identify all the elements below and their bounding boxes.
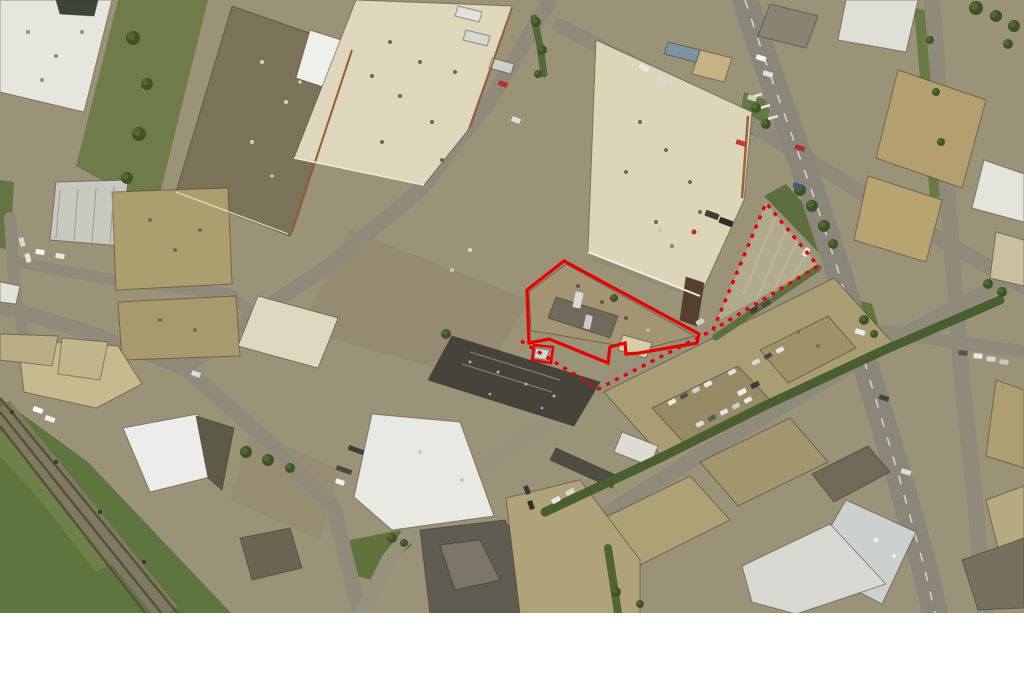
- roof-vent: [388, 40, 392, 44]
- aerial-photo-svg: [0, 0, 1024, 613]
- roof-vent: [624, 316, 628, 320]
- roof-vent: [148, 218, 152, 222]
- roof-vent: [380, 140, 384, 144]
- roof-vent: [468, 248, 472, 252]
- building-roof-vent-nw: [56, 0, 98, 16]
- car: [999, 359, 1008, 365]
- roof-vent: [688, 180, 692, 184]
- tree: [970, 2, 978, 10]
- tree: [122, 173, 129, 180]
- building-tan-east3: [990, 232, 1024, 286]
- tree: [538, 46, 544, 52]
- tree: [762, 120, 768, 126]
- tree: [263, 455, 270, 462]
- roof-vent: [576, 284, 580, 288]
- roof-vent: [98, 510, 102, 514]
- roof-vent: [418, 450, 422, 454]
- roof-vent: [142, 560, 146, 564]
- building-tan-nw-corner1: [0, 334, 58, 366]
- roof-vent: [670, 244, 674, 248]
- tree: [819, 221, 826, 228]
- car: [973, 353, 982, 359]
- roof-vent: [450, 268, 454, 272]
- tree: [933, 89, 937, 93]
- roof-vent: [453, 70, 457, 74]
- roof-vent: [54, 54, 58, 58]
- tree: [611, 295, 615, 299]
- roof-vent: [664, 148, 668, 152]
- roof-vent: [469, 361, 472, 364]
- roof-vent: [398, 94, 402, 98]
- tree: [1004, 40, 1010, 46]
- tree: [241, 447, 248, 454]
- roof-vent: [198, 228, 202, 232]
- roof-vent: [10, 410, 14, 414]
- tree: [752, 104, 758, 110]
- building-white-w-small: [0, 282, 20, 304]
- page-bottom-margin: [0, 613, 1024, 691]
- roof-vent: [173, 248, 177, 252]
- tree: [860, 316, 866, 322]
- roof-vent: [638, 120, 642, 124]
- roof-vent: [270, 174, 273, 177]
- tree: [401, 540, 405, 544]
- roof-vent: [874, 538, 879, 543]
- tree: [286, 464, 292, 470]
- tree: [829, 240, 835, 246]
- roof-vent: [298, 80, 301, 83]
- roof-vent: [460, 478, 464, 482]
- roof-vent: [497, 371, 500, 374]
- tree: [871, 331, 875, 335]
- roof-vent: [284, 100, 288, 104]
- page: [0, 0, 1024, 691]
- roof-vent: [892, 554, 896, 558]
- roof-vent: [489, 393, 492, 396]
- roof-vent: [646, 328, 649, 331]
- tree: [127, 32, 135, 40]
- roof-vent: [654, 220, 658, 224]
- tree: [927, 37, 931, 41]
- roof-vent: [430, 120, 434, 124]
- roof-vent: [250, 140, 254, 144]
- tree: [133, 128, 141, 136]
- tree: [984, 280, 990, 286]
- roof-vent: [541, 407, 544, 410]
- roof-vent: [40, 78, 44, 82]
- roof-vent: [26, 30, 30, 34]
- tree: [998, 288, 1004, 294]
- roof-vent: [658, 228, 662, 232]
- tree: [637, 601, 641, 605]
- building-tan-west-upper: [112, 188, 232, 290]
- tree: [1009, 21, 1016, 28]
- tree: [532, 18, 538, 24]
- tree: [938, 139, 942, 143]
- roof-vent: [80, 30, 84, 34]
- tree: [388, 534, 394, 540]
- roof-vent: [525, 383, 528, 386]
- roof-vent: [692, 230, 697, 235]
- roof-vent: [193, 328, 197, 332]
- roof-vent: [260, 60, 264, 64]
- roof-vent: [158, 318, 162, 322]
- roof-vent: [698, 210, 702, 214]
- building-tan-west-lower: [118, 296, 240, 360]
- roof-vent: [54, 460, 58, 464]
- roof-vent: [796, 330, 800, 334]
- roof-vent: [600, 300, 604, 304]
- tree: [442, 330, 448, 336]
- roof-vent: [816, 344, 820, 348]
- car: [958, 350, 967, 356]
- roof-vent: [553, 395, 556, 398]
- aerial-photo: [0, 0, 1024, 613]
- roof-vent: [370, 74, 374, 78]
- roof-vent: [440, 158, 444, 162]
- tree: [991, 11, 998, 18]
- tree: [612, 588, 618, 594]
- tree: [807, 201, 814, 208]
- tree: [142, 79, 149, 86]
- building-tan-nw-corner2: [58, 338, 108, 380]
- tree: [535, 71, 539, 75]
- car: [986, 356, 995, 362]
- roof-vent: [624, 170, 628, 174]
- roof-vent: [418, 60, 422, 64]
